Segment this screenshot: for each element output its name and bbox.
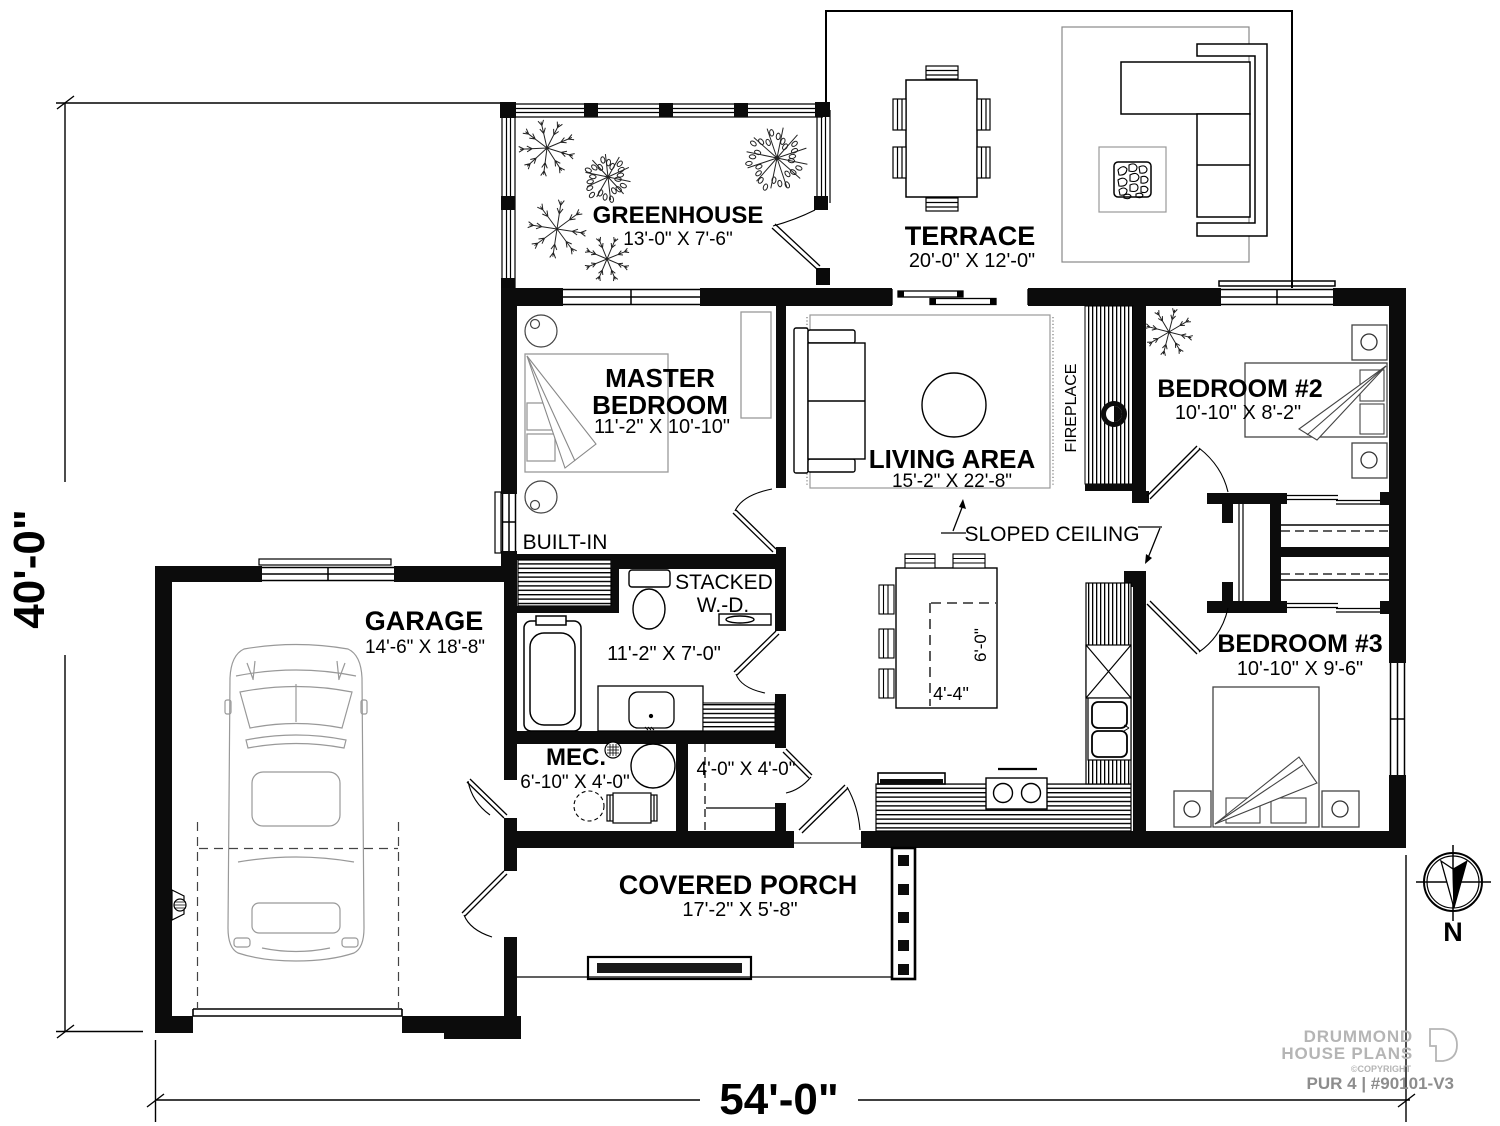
svg-text:GARAGE: GARAGE bbox=[365, 606, 484, 636]
svg-text:13'-0" X 7'-6": 13'-0" X 7'-6" bbox=[623, 229, 732, 250]
svg-text:11'-2" X 10'-10": 11'-2" X 10'-10" bbox=[594, 416, 730, 438]
svg-text:LIVING AREA: LIVING AREA bbox=[869, 444, 1036, 474]
svg-text:BEDROOM #3: BEDROOM #3 bbox=[1217, 630, 1382, 658]
svg-text:10'-10" X 8'-2": 10'-10" X 8'-2" bbox=[1175, 402, 1301, 424]
svg-text:14'-6" X 18'-8": 14'-6" X 18'-8" bbox=[365, 637, 485, 658]
svg-text:N: N bbox=[1443, 917, 1463, 947]
svg-text:15'-2" X 22'-8": 15'-2" X 22'-8" bbox=[892, 471, 1012, 492]
svg-text:MEC.: MEC. bbox=[546, 744, 606, 771]
svg-text:GREENHOUSE: GREENHOUSE bbox=[593, 202, 764, 229]
svg-text:BUILT-IN: BUILT-IN bbox=[523, 531, 608, 554]
svg-text:40'-0": 40'-0" bbox=[5, 509, 54, 628]
svg-text:BEDROOM #2: BEDROOM #2 bbox=[1157, 375, 1322, 403]
svg-text:6'-0": 6'-0" bbox=[971, 628, 990, 662]
svg-text:10'-10" X 9'-6": 10'-10" X 9'-6" bbox=[1237, 658, 1363, 680]
svg-text:6'-10" X 4'-0": 6'-10" X 4'-0" bbox=[520, 772, 629, 793]
svg-text:20'-0" X 12'-0": 20'-0" X 12'-0" bbox=[909, 250, 1035, 272]
svg-text:COVERED PORCH: COVERED PORCH bbox=[619, 870, 858, 900]
svg-text:HOUSE PLANS: HOUSE PLANS bbox=[1281, 1044, 1413, 1063]
svg-text:54'-0": 54'-0" bbox=[719, 1075, 838, 1124]
svg-text:©COPYRIGHT: ©COPYRIGHT bbox=[1351, 1064, 1412, 1074]
svg-text:STACKED: STACKED bbox=[675, 571, 773, 594]
svg-text:4'-4": 4'-4" bbox=[933, 684, 969, 704]
svg-text:PUR 4 | #90101-V3: PUR 4 | #90101-V3 bbox=[1307, 1074, 1454, 1093]
svg-text:SLOPED CEILING: SLOPED CEILING bbox=[964, 523, 1139, 546]
svg-text:11'-2" X 7'-0": 11'-2" X 7'-0" bbox=[607, 643, 721, 665]
svg-text:4'-0" X 4'-0": 4'-0" X 4'-0" bbox=[697, 759, 796, 780]
svg-text:MASTER: MASTER bbox=[605, 363, 715, 393]
svg-text:17'-2" X 5'-8": 17'-2" X 5'-8" bbox=[682, 899, 797, 921]
svg-text:FIREPLACE: FIREPLACE bbox=[1063, 364, 1080, 453]
svg-text:TERRACE: TERRACE bbox=[905, 221, 1036, 251]
